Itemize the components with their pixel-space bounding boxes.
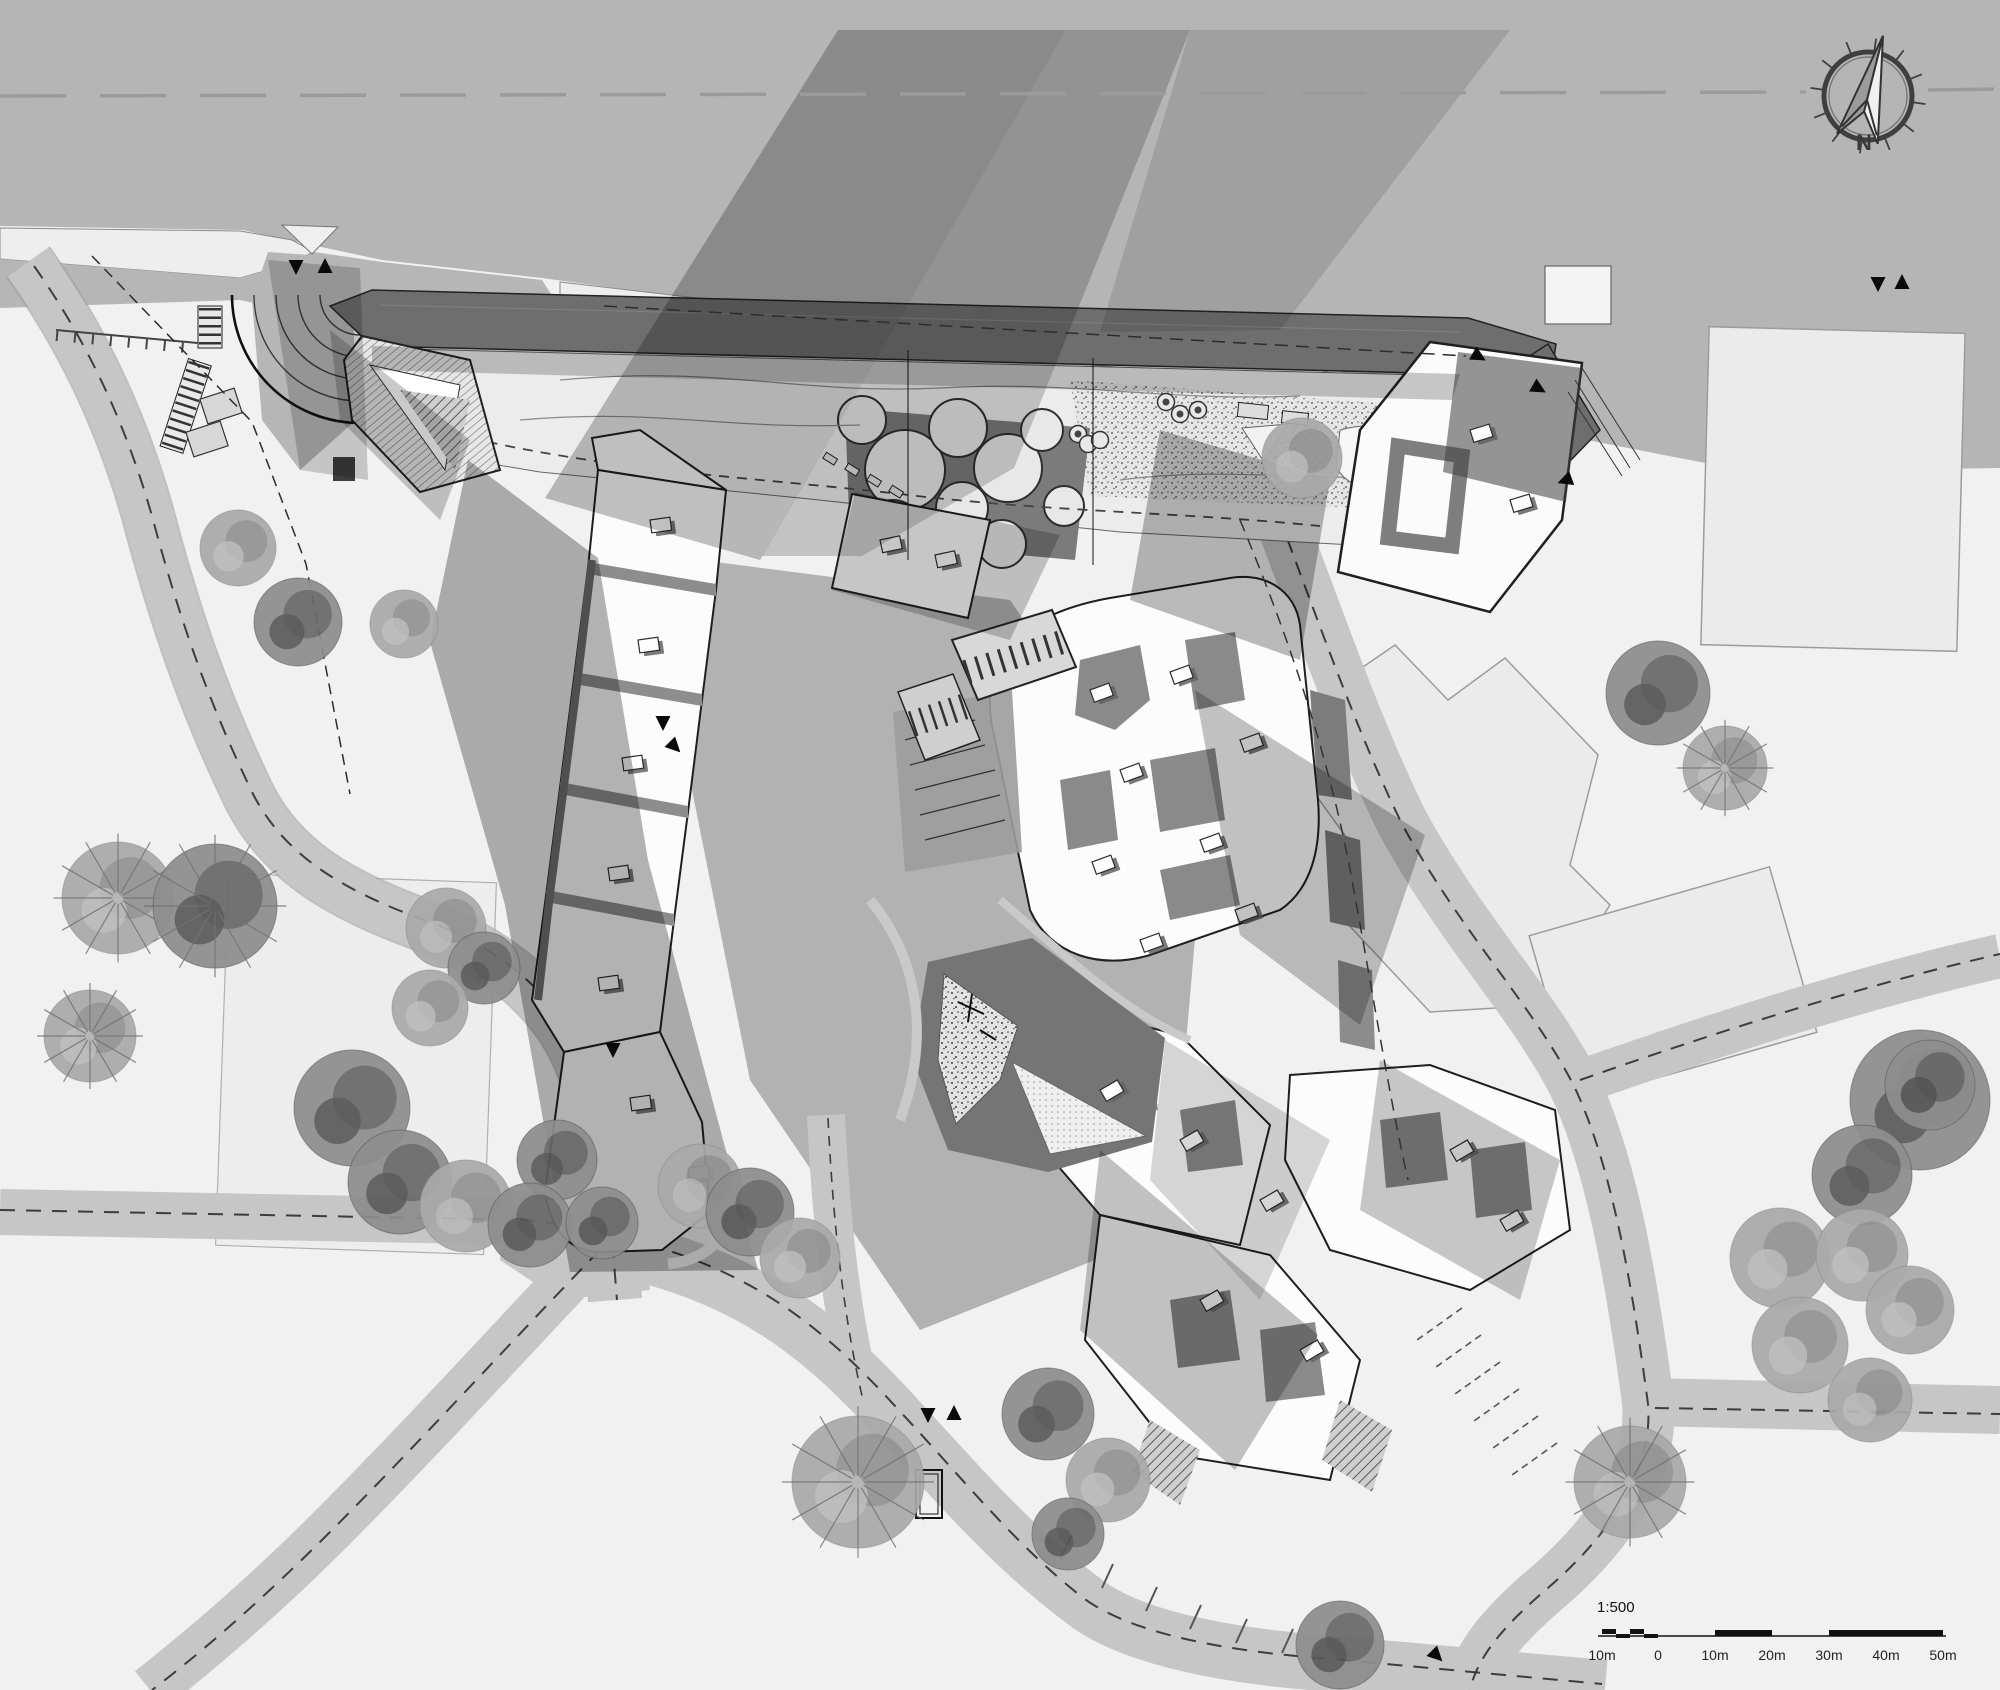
tree [1262, 418, 1342, 498]
tree-texture-patch [1594, 1472, 1639, 1517]
tree-texture-patch [269, 614, 304, 649]
tree-texture-patch [1045, 1528, 1074, 1557]
tree-texture-patch [366, 1173, 408, 1215]
tree [1296, 1601, 1384, 1689]
site-plan-canvas: N 1:500 10m 0 10m 20m 30m 40m 50m [0, 0, 2000, 1690]
tree-texture-patch [461, 962, 490, 991]
drawing-layers [0, 0, 2000, 1690]
tree [488, 1183, 572, 1267]
tree-texture-patch [405, 1001, 435, 1031]
tree [1032, 1498, 1104, 1570]
tree-texture-patch [1901, 1077, 1937, 1113]
tree-texture-patch [82, 888, 127, 933]
tree [392, 970, 468, 1046]
scale-tick-label: 10m [1701, 1647, 1728, 1663]
site-plan: architectural-site-plan [0, 0, 2000, 1690]
site-buildings-shape [1060, 770, 1118, 850]
neighbor-buildings-shape [1701, 327, 1965, 652]
tree-texture-patch [1276, 451, 1308, 483]
tree-texture-patch [1881, 1302, 1916, 1337]
scale-tick-label: 20m [1758, 1647, 1785, 1663]
tree [1002, 1368, 1094, 1460]
tree [200, 510, 276, 586]
scale-tick-label: 50m [1929, 1647, 1956, 1663]
tree-texture-patch [175, 895, 225, 945]
scale-segment [1616, 1634, 1630, 1638]
tree-texture-patch [1748, 1249, 1788, 1289]
north-label: N [1856, 130, 1872, 155]
tree-texture-patch [1843, 1392, 1877, 1426]
tree [254, 578, 342, 666]
tree-texture-patch [1018, 1406, 1055, 1443]
tree-texture-patch [1624, 684, 1666, 726]
scale-segment [1829, 1630, 1886, 1636]
rooftop-box-top [638, 637, 660, 653]
tree-texture-patch [314, 1098, 360, 1144]
tree [370, 590, 438, 658]
tree-texture-patch [1830, 1166, 1870, 1206]
scale-segment [1630, 1629, 1644, 1634]
tree-texture-patch [436, 1198, 473, 1235]
tree [1828, 1358, 1912, 1442]
tree [566, 1187, 638, 1259]
tree-texture-patch [673, 1178, 707, 1212]
tree-texture-patch [815, 1470, 868, 1523]
tree-texture-patch [1081, 1472, 1115, 1506]
scale-segment [1715, 1630, 1772, 1636]
landscape-strip-shape [1163, 399, 1170, 406]
landscape-strip-shape [1044, 486, 1084, 526]
tree-texture-patch [531, 1153, 563, 1185]
tree-texture-patch [213, 541, 243, 571]
landscape-strip-shape [1195, 407, 1202, 414]
landscape-strip-shape [1237, 402, 1268, 419]
roads-shape [1648, 1402, 2000, 1410]
scale-tick-label: 10m [1588, 1647, 1615, 1663]
landscape-strip-shape [1092, 432, 1109, 449]
tree-texture-patch [774, 1251, 806, 1283]
tree [1730, 1208, 1830, 1308]
scale-ratio-label: 1:500 [1597, 1599, 1635, 1616]
scale-segment [1644, 1634, 1658, 1638]
tree [1866, 1266, 1954, 1354]
tree [1606, 641, 1710, 745]
tree-texture-patch [579, 1217, 608, 1246]
scale-segment [1602, 1629, 1616, 1634]
tree-texture-patch [420, 921, 452, 953]
tree-texture-patch [60, 1028, 97, 1065]
scale-tick-label: 0 [1654, 1647, 1662, 1663]
scale-segment [1886, 1630, 1943, 1636]
tree-texture-patch [1311, 1637, 1346, 1672]
landscape-strip-shape [1177, 411, 1184, 418]
tree [760, 1218, 840, 1298]
neighbor-buildings-shape [1545, 266, 1611, 324]
scale-tick-label: 40m [1872, 1647, 1899, 1663]
landscape-strip-shape [1075, 431, 1082, 438]
tree-texture-patch [382, 618, 409, 645]
tree-texture-patch [503, 1217, 537, 1251]
tree [1885, 1040, 1975, 1130]
tree-texture-patch [721, 1204, 756, 1239]
tree-texture-patch [1832, 1247, 1869, 1284]
tree-texture-patch [1698, 760, 1732, 794]
tree-texture-patch [1769, 1336, 1807, 1374]
scale-tick-label: 30m [1815, 1647, 1842, 1663]
